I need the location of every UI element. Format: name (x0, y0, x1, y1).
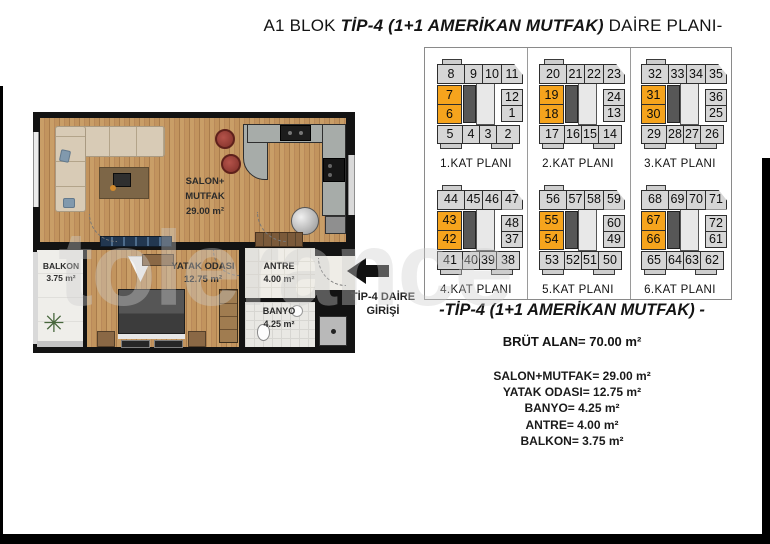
apartment-cell-highlighted: 54 (539, 230, 564, 250)
apartment-cell: 15 (581, 125, 599, 144)
apartment-cell: 32 (641, 64, 669, 84)
entrance-label: TİP-4 DAİRE GİRİŞİ (338, 290, 428, 318)
apartment-cell: 39 (479, 251, 497, 270)
list-item: SALON+MUTFAK= 29.00 m² (404, 368, 740, 384)
antre-name: ANTRE (249, 260, 309, 273)
list-item: BALKON= 3.75 m² (404, 433, 740, 449)
apartment-cell: 29 (641, 125, 667, 144)
page-title: A1 BLOK TİP-4 (1+1 AMERİKAN MUTFAK) DAİR… (210, 16, 770, 36)
kat-plan-building: 32 33 34 35 31 30 36 25 29 28 27 26 (633, 58, 727, 149)
plant-icon: ✳ (43, 310, 65, 336)
apartment-cell: 57 (566, 190, 585, 210)
kat-plan: 68 69 70 71 67 66 72 61 65 64 63 62 6.KA… (629, 174, 731, 300)
kat-plan-building: 20 21 22 23 19 18 24 13 17 16 15 14 (531, 58, 625, 149)
apartment-cell-highlighted: 6 (437, 104, 462, 124)
apartment-cell-highlighted: 67 (641, 211, 666, 231)
apartment-cell: 46 (482, 190, 502, 210)
apartment-cell: 71 (705, 190, 727, 210)
apartment-cell: 56 (539, 190, 567, 210)
apartment-cell-highlighted: 43 (437, 211, 462, 231)
apartment-cell: 1 (501, 105, 523, 122)
apartment-cell: 41 (437, 251, 463, 270)
balcony-name: BALKON (38, 260, 84, 272)
bathroom-label: BANYO 4.25 m² (249, 305, 309, 331)
kat-plan: 32 33 34 35 31 30 36 25 29 28 27 26 3.KA… (629, 48, 731, 174)
apartment-cell-highlighted: 19 (539, 85, 564, 105)
salon-name: SALON+ (173, 174, 237, 189)
key-plans-grid: 8 9 10 11 7 6 12 1 5 4 3 2 1.KAT PLANI (425, 48, 731, 299)
apartment-cell: 69 (668, 190, 687, 210)
apartment-cell: 62 (700, 251, 724, 270)
kat-plan-building: 8 9 10 11 7 6 12 1 5 4 3 2 (429, 58, 523, 149)
list-item: BANYO= 4.25 m² (404, 400, 740, 416)
water-heater (291, 207, 319, 235)
apartment-cell: 63 (683, 251, 701, 270)
elevator-core (680, 83, 699, 125)
bathroom-name: BANYO (249, 305, 309, 318)
cooktop (280, 125, 311, 141)
apartment-cell: 11 (501, 64, 523, 84)
decor (110, 185, 116, 191)
apartment-cell: 14 (598, 125, 622, 144)
apartment-cell: 10 (482, 64, 502, 84)
apartment-cell: 13 (603, 105, 625, 122)
title-suffix: DAİRE PLANI- (604, 16, 723, 35)
title-emphasis: TİP-4 (1+1 AMERİKAN MUTFAK) (341, 16, 604, 35)
title-prefix: A1 BLOK (263, 16, 340, 35)
apartment-cell: 24 (603, 89, 625, 106)
kat-plan-label: 3.KAT PLANI (644, 158, 716, 170)
pillow (154, 340, 183, 348)
entrance-label-line1: TİP-4 DAİRE (338, 290, 428, 304)
image-border-bottom (3, 534, 770, 544)
summary-heading: -TİP-4 (1+1 AMERİKAN MUTFAK) - (404, 301, 740, 320)
apartment-cell: 4 (462, 125, 480, 144)
apartment-cell: 65 (641, 251, 667, 270)
apartment-cell: 51 (581, 251, 599, 270)
stair-core (463, 85, 476, 123)
apartment-cell: 28 (666, 125, 684, 144)
apartment-cell: 35 (705, 64, 727, 84)
bed (118, 289, 185, 334)
apartment-cell: 17 (539, 125, 565, 144)
list-item: ANTRE= 4.00 m² (404, 417, 740, 433)
apartment-cell-highlighted: 66 (641, 230, 666, 250)
bathroom-area: 4.25 m² (249, 318, 309, 331)
apartment-cell: 25 (705, 105, 727, 122)
kat-plan-label: 1.KAT PLANI (440, 158, 512, 170)
balcony-area: 3.75 m² (38, 272, 84, 284)
apartment-cell-highlighted: 30 (641, 104, 666, 124)
kat-plan: 8 9 10 11 7 6 12 1 5 4 3 2 1.KAT PLANI (425, 48, 527, 174)
apartment-cell: 33 (668, 64, 687, 84)
apartment-cell: 37 (501, 231, 523, 248)
antre-area: 4.00 m² (249, 273, 309, 286)
wardrobe (219, 289, 238, 343)
bed-sheet (118, 334, 185, 339)
apartment-cell: 58 (584, 190, 604, 210)
elevator-core (578, 209, 597, 251)
coffee-table (113, 173, 131, 187)
pillow (121, 340, 150, 348)
apartment-cell: 23 (603, 64, 625, 84)
image-border-left (0, 86, 3, 544)
entry-arrow-icon (347, 258, 391, 284)
apartment-cell: 70 (686, 190, 706, 210)
salon-name: MUTFAK (173, 189, 237, 204)
apartment-cell: 21 (566, 64, 585, 84)
elevator-core (476, 83, 495, 125)
stair-core (667, 85, 680, 123)
kat-plan: 44 45 46 47 43 42 48 37 41 40 39 38 4.KA… (425, 174, 527, 300)
apartment-cell-highlighted: 18 (539, 104, 564, 124)
stair-core (565, 85, 578, 123)
appliance (325, 216, 346, 234)
bedroom-name: YATAK ODASI (161, 260, 245, 273)
elevator-core (578, 83, 597, 125)
stair-core (463, 211, 476, 249)
room-area-list: SALON+MUTFAK= 29.00 m² YATAK ODASI= 12.7… (404, 368, 740, 449)
apartment-cell: 40 (462, 251, 480, 270)
floor-plan: ✳ SALON+ MUTFAK 29.00 m² YATAK ODASI 12.… (33, 112, 355, 353)
gross-area: BRÜT ALAN= 70.00 m² (404, 334, 740, 349)
balcony-label: BALKON 3.75 m² (38, 260, 84, 284)
apartment-cell: 12 (501, 89, 523, 106)
elevator-core (680, 209, 699, 251)
apartment-cell: 27 (683, 125, 701, 144)
apartment-cell: 34 (686, 64, 706, 84)
apartment-cell: 45 (464, 190, 483, 210)
apartment-cell: 52 (564, 251, 582, 270)
apartment-cell: 26 (700, 125, 724, 144)
kat-plan-building: 68 69 70 71 67 66 72 61 65 64 63 62 (633, 184, 727, 275)
salon-window (33, 132, 39, 207)
list-item: YATAK ODASI= 12.75 m² (404, 384, 740, 400)
apartment-cell: 47 (501, 190, 523, 210)
apartment-cell-highlighted: 7 (437, 85, 462, 105)
kat-plan: 56 57 58 59 55 54 60 49 53 52 51 50 5.KA… (527, 174, 629, 300)
stair-core (667, 211, 680, 249)
kat-plan-label: 5.KAT PLANI (542, 284, 614, 296)
elevator-core (476, 209, 495, 251)
apartment-cell: 48 (501, 215, 523, 232)
apartment-cell: 72 (705, 215, 727, 232)
image-border-right (762, 158, 770, 544)
bar-stool (215, 129, 235, 149)
kitchen-window (348, 155, 355, 215)
apartment-cell: 53 (539, 251, 565, 270)
balcony-rail (37, 341, 83, 347)
kat-plan-label: 4.KAT PLANI (440, 284, 512, 296)
entrance-label-line2: GİRİŞİ (338, 304, 428, 318)
cushion (63, 198, 75, 208)
apartment-cell: 50 (598, 251, 622, 270)
apartment-cell: 2 (496, 125, 520, 144)
apartment-cell: 9 (464, 64, 483, 84)
shower-niche (319, 316, 347, 346)
apartment-cell: 22 (584, 64, 604, 84)
apartment-cell-highlighted: 55 (539, 211, 564, 231)
nightstand (188, 331, 206, 347)
antre-label: ANTRE 4.00 m² (249, 260, 309, 286)
apartment-cell: 59 (603, 190, 625, 210)
kat-plan-label: 2.KAT PLANI (542, 158, 614, 170)
apartment-cell-highlighted: 31 (641, 85, 666, 105)
apartment-cell: 3 (479, 125, 497, 144)
stove (323, 158, 345, 182)
bedroom-area: 12.75 m² (161, 273, 245, 286)
apartment-cell: 20 (539, 64, 567, 84)
arrow-shaft (364, 265, 389, 277)
apartment-cell: 5 (437, 125, 463, 144)
apartment-cell: 68 (641, 190, 669, 210)
stair-core (565, 211, 578, 249)
nightstand (97, 331, 115, 347)
apartment-cell: 38 (496, 251, 520, 270)
bar-stool (221, 154, 241, 174)
apartment-cell: 61 (705, 231, 727, 248)
apartment-cell: 8 (437, 64, 465, 84)
kat-plan: 20 21 22 23 19 18 24 13 17 16 15 14 2.KA… (527, 48, 629, 174)
kat-plan-building: 56 57 58 59 55 54 60 49 53 52 51 50 (531, 184, 625, 275)
apartment-cell: 16 (564, 125, 582, 144)
kat-plan-label: 6.KAT PLANI (644, 284, 716, 296)
apartment-cell: 49 (603, 231, 625, 248)
key-plans-panel: 8 9 10 11 7 6 12 1 5 4 3 2 1.KAT PLANI (424, 47, 732, 300)
salon-label: SALON+ MUTFAK 29.00 m² (173, 174, 237, 219)
apartment-cell: 36 (705, 89, 727, 106)
salon-area: 29.00 m² (173, 204, 237, 219)
apartment-plan-poster: A1 BLOK TİP-4 (1+1 AMERİKAN MUTFAK) DAİR… (0, 0, 770, 544)
bedroom-label: YATAK ODASI 12.75 m² (161, 260, 245, 286)
apartment-cell: 44 (437, 190, 465, 210)
apartment-cell-highlighted: 42 (437, 230, 462, 250)
apartment-cell: 64 (666, 251, 684, 270)
apartment-cell: 60 (603, 215, 625, 232)
kat-plan-building: 44 45 46 47 43 42 48 37 41 40 39 38 (429, 184, 523, 275)
